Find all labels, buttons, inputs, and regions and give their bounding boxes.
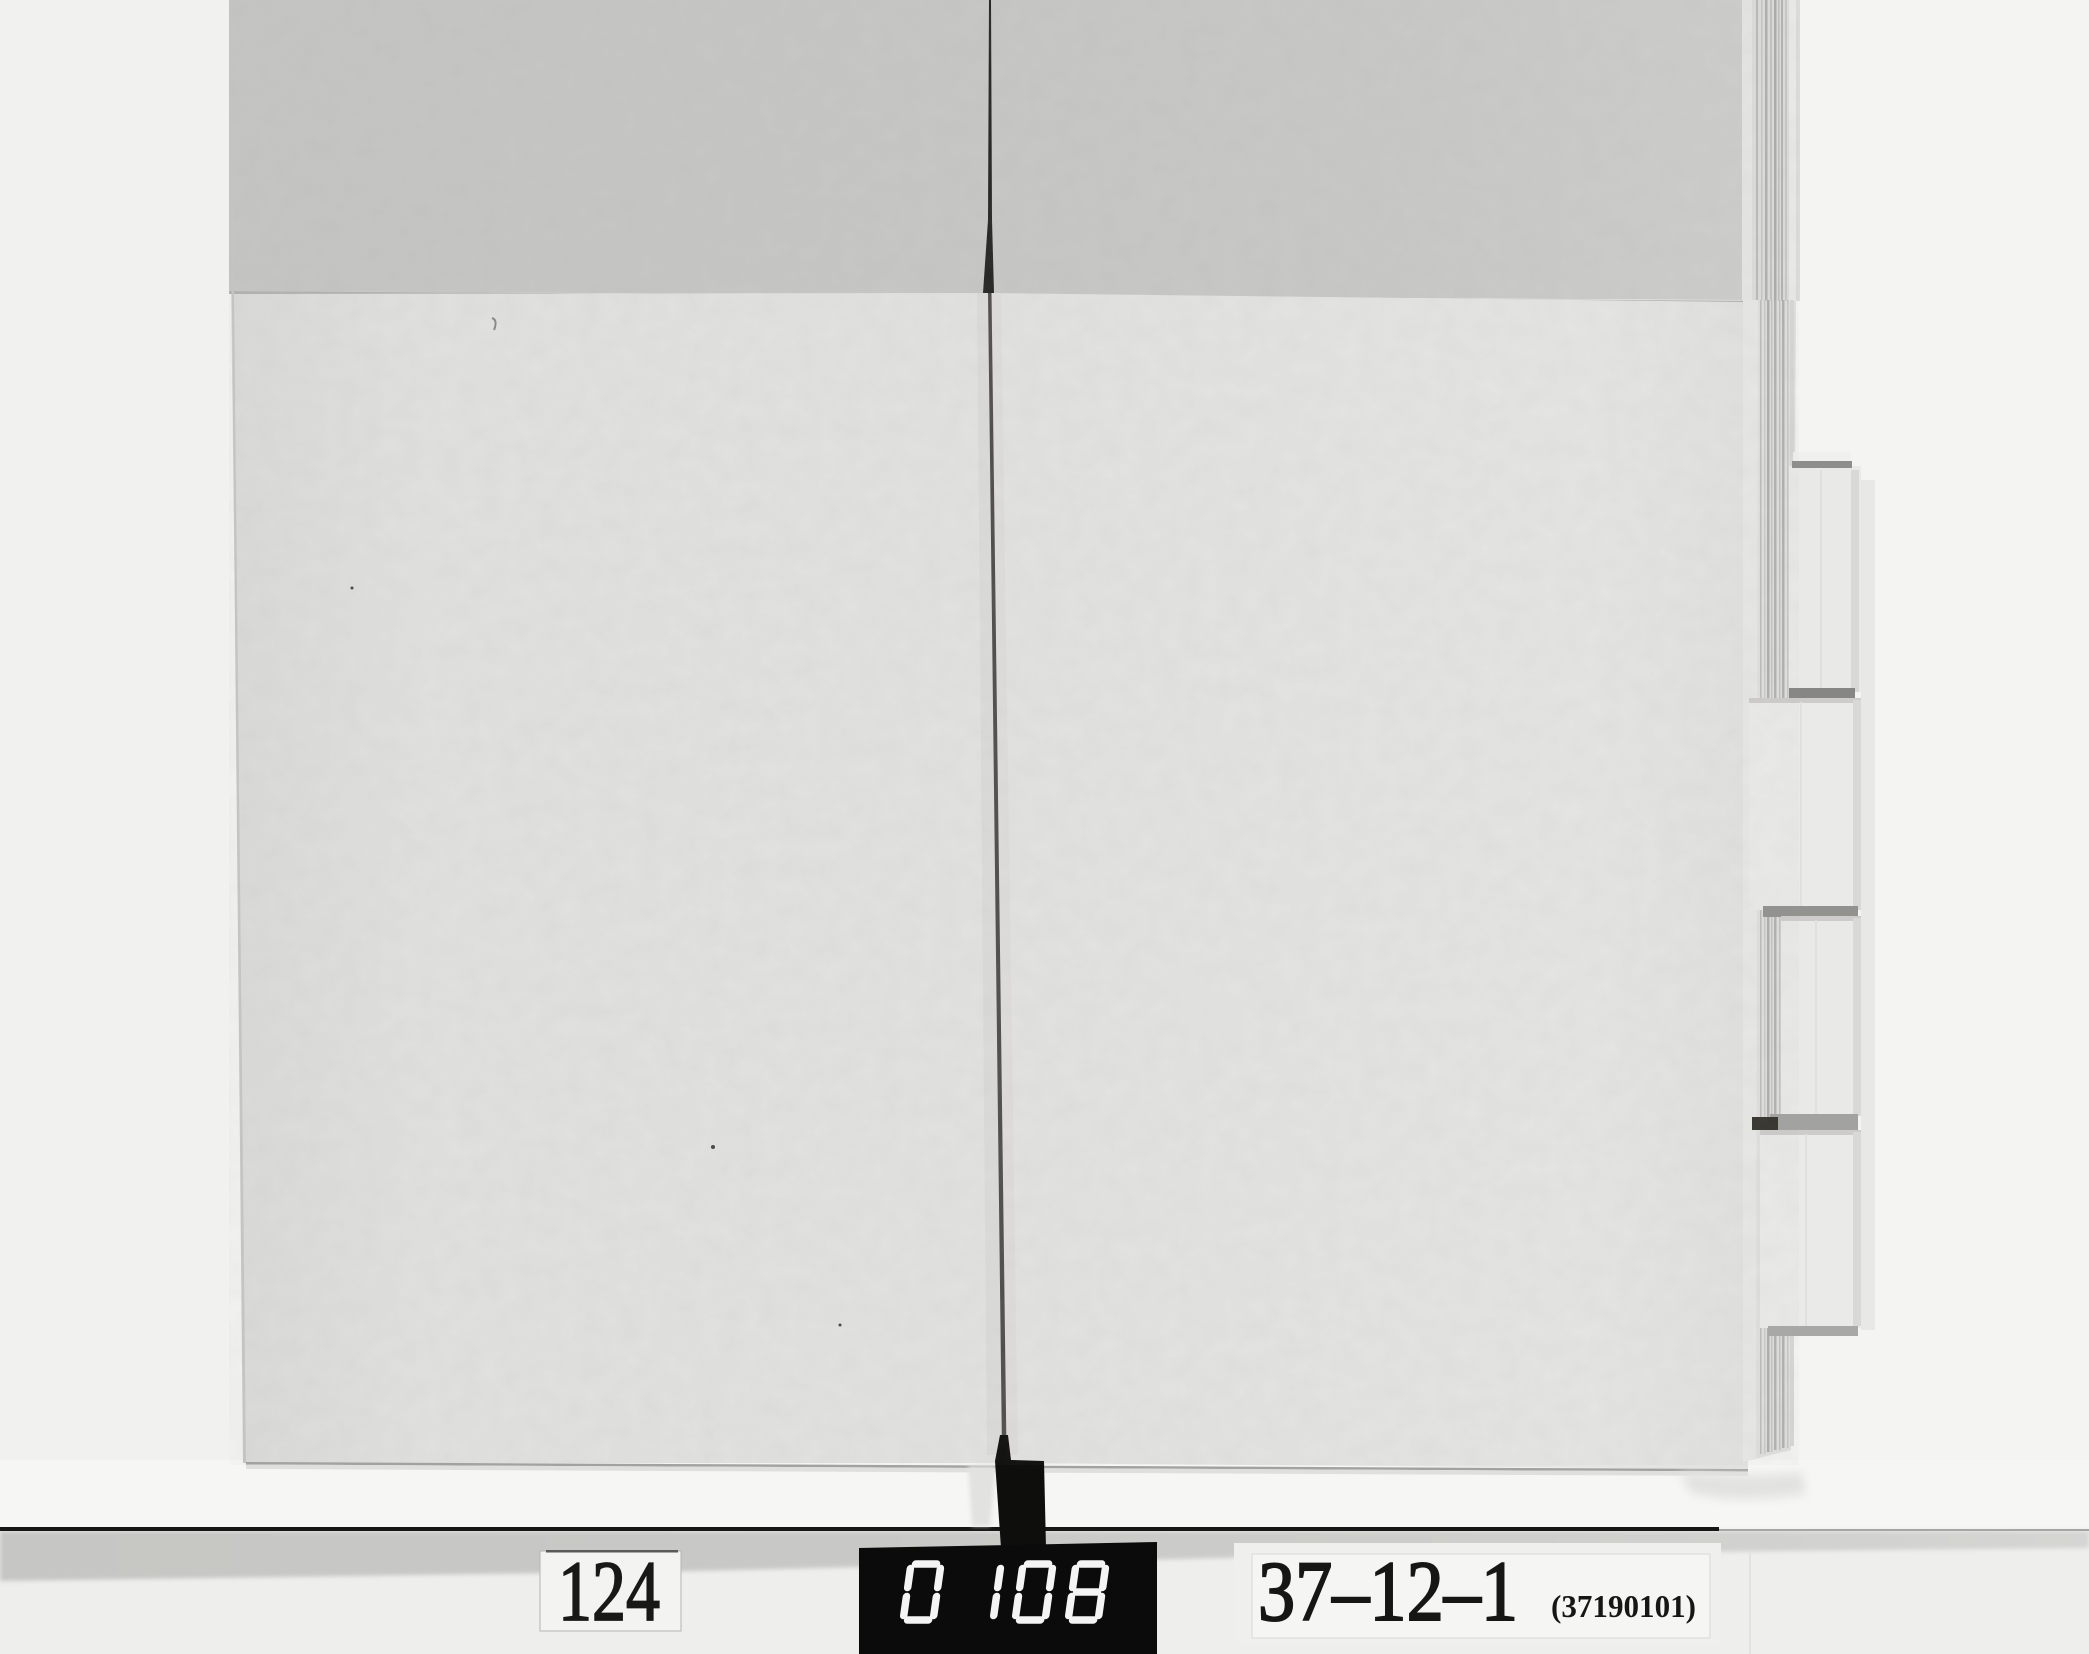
svg-text:124: 124: [558, 1543, 660, 1639]
svg-text:(37190101): (37190101): [1551, 1588, 1696, 1624]
svg-text:37–12–1: 37–12–1: [1258, 1543, 1518, 1639]
